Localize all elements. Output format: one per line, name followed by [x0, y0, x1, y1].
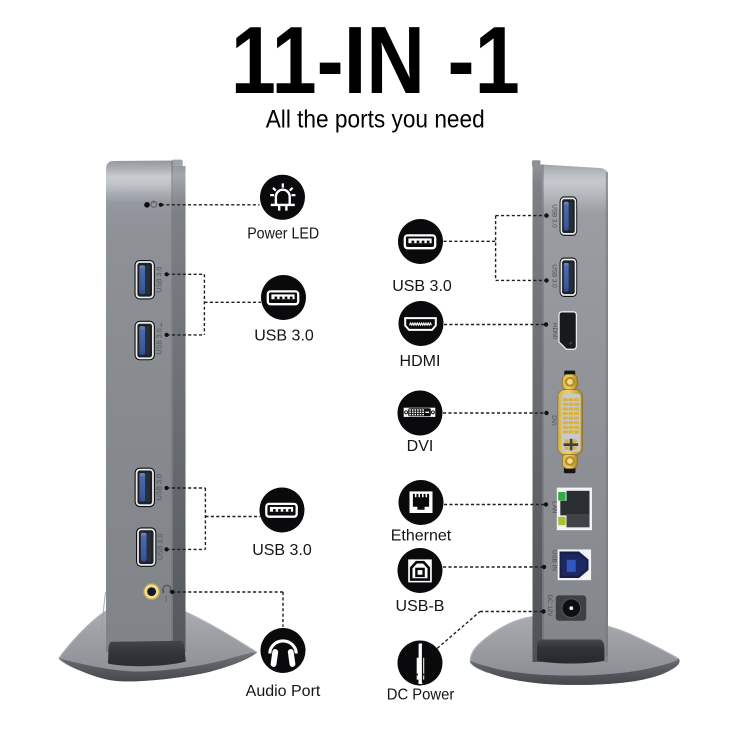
svg-text:DC 12V: DC 12V	[546, 594, 553, 617]
svg-text:USB 3.0: USB 3.0	[551, 204, 558, 228]
svg-text:Ethernet: Ethernet	[391, 528, 452, 545]
svg-text:USB 3.0: USB 3.0	[156, 328, 163, 354]
svg-text:USB IN: USB IN	[550, 550, 557, 571]
svg-text:HDMI: HDMI	[551, 323, 558, 339]
svg-text:USB 3.0: USB 3.0	[156, 267, 163, 293]
svg-text:USB 3.0: USB 3.0	[158, 534, 165, 560]
svg-text:USB 3.0: USB 3.0	[156, 474, 163, 500]
svg-text:USB-B: USB-B	[396, 598, 445, 615]
svg-text:All the ports you need: All the ports you need	[266, 106, 485, 134]
svg-text:HDMI: HDMI	[400, 353, 441, 370]
svg-text:LAN: LAN	[550, 501, 557, 514]
svg-text:11-IN -1: 11-IN -1	[231, 7, 520, 114]
svg-text:DVI: DVI	[407, 438, 434, 455]
svg-text:USB 3.0: USB 3.0	[254, 327, 314, 344]
svg-text:USB 3.0: USB 3.0	[551, 264, 558, 288]
svg-text:USB 3.0: USB 3.0	[252, 542, 312, 559]
svg-text:Power LED: Power LED	[247, 225, 319, 242]
svg-text:DVI: DVI	[550, 415, 557, 426]
svg-text:Audio Port: Audio Port	[246, 683, 321, 700]
svg-text:USB 3.0: USB 3.0	[392, 278, 452, 295]
svg-text:DC Power: DC Power	[387, 686, 455, 703]
